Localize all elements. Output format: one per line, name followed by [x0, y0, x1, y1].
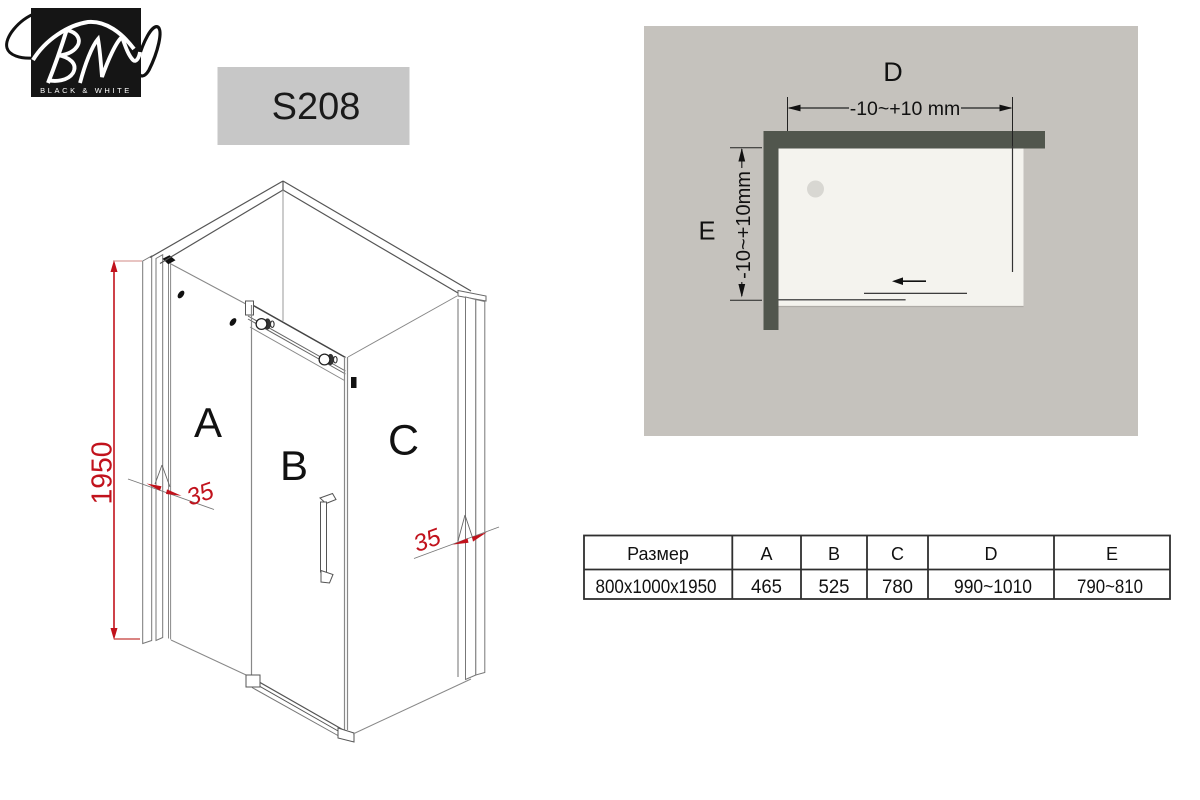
- svg-text:990~1010: 990~1010: [954, 576, 1032, 598]
- svg-text:D: D: [883, 57, 903, 87]
- svg-text:Размер: Размер: [627, 544, 689, 564]
- svg-text:B: B: [828, 544, 840, 564]
- svg-text:A: A: [760, 544, 772, 564]
- svg-text:B: B: [280, 442, 308, 489]
- svg-text:465: 465: [751, 576, 782, 598]
- svg-text:1950: 1950: [87, 442, 119, 505]
- svg-text:790~810: 790~810: [1077, 576, 1143, 598]
- svg-text:780: 780: [882, 576, 913, 598]
- svg-text:-10~+10mm: -10~+10mm: [733, 171, 755, 279]
- svg-text:E: E: [1106, 544, 1118, 564]
- svg-text:BLACK & WHITE: BLACK & WHITE: [40, 86, 132, 95]
- svg-text:C: C: [388, 417, 419, 465]
- svg-text:525: 525: [819, 576, 850, 598]
- svg-text:-10~+10 mm: -10~+10 mm: [850, 98, 961, 120]
- svg-text:800x1000x1950: 800x1000x1950: [596, 576, 717, 598]
- svg-text:C: C: [891, 544, 904, 564]
- svg-text:E: E: [698, 218, 715, 246]
- svg-text:D: D: [985, 544, 998, 564]
- svg-text:A: A: [194, 399, 222, 446]
- svg-text:S208: S208: [272, 86, 361, 128]
